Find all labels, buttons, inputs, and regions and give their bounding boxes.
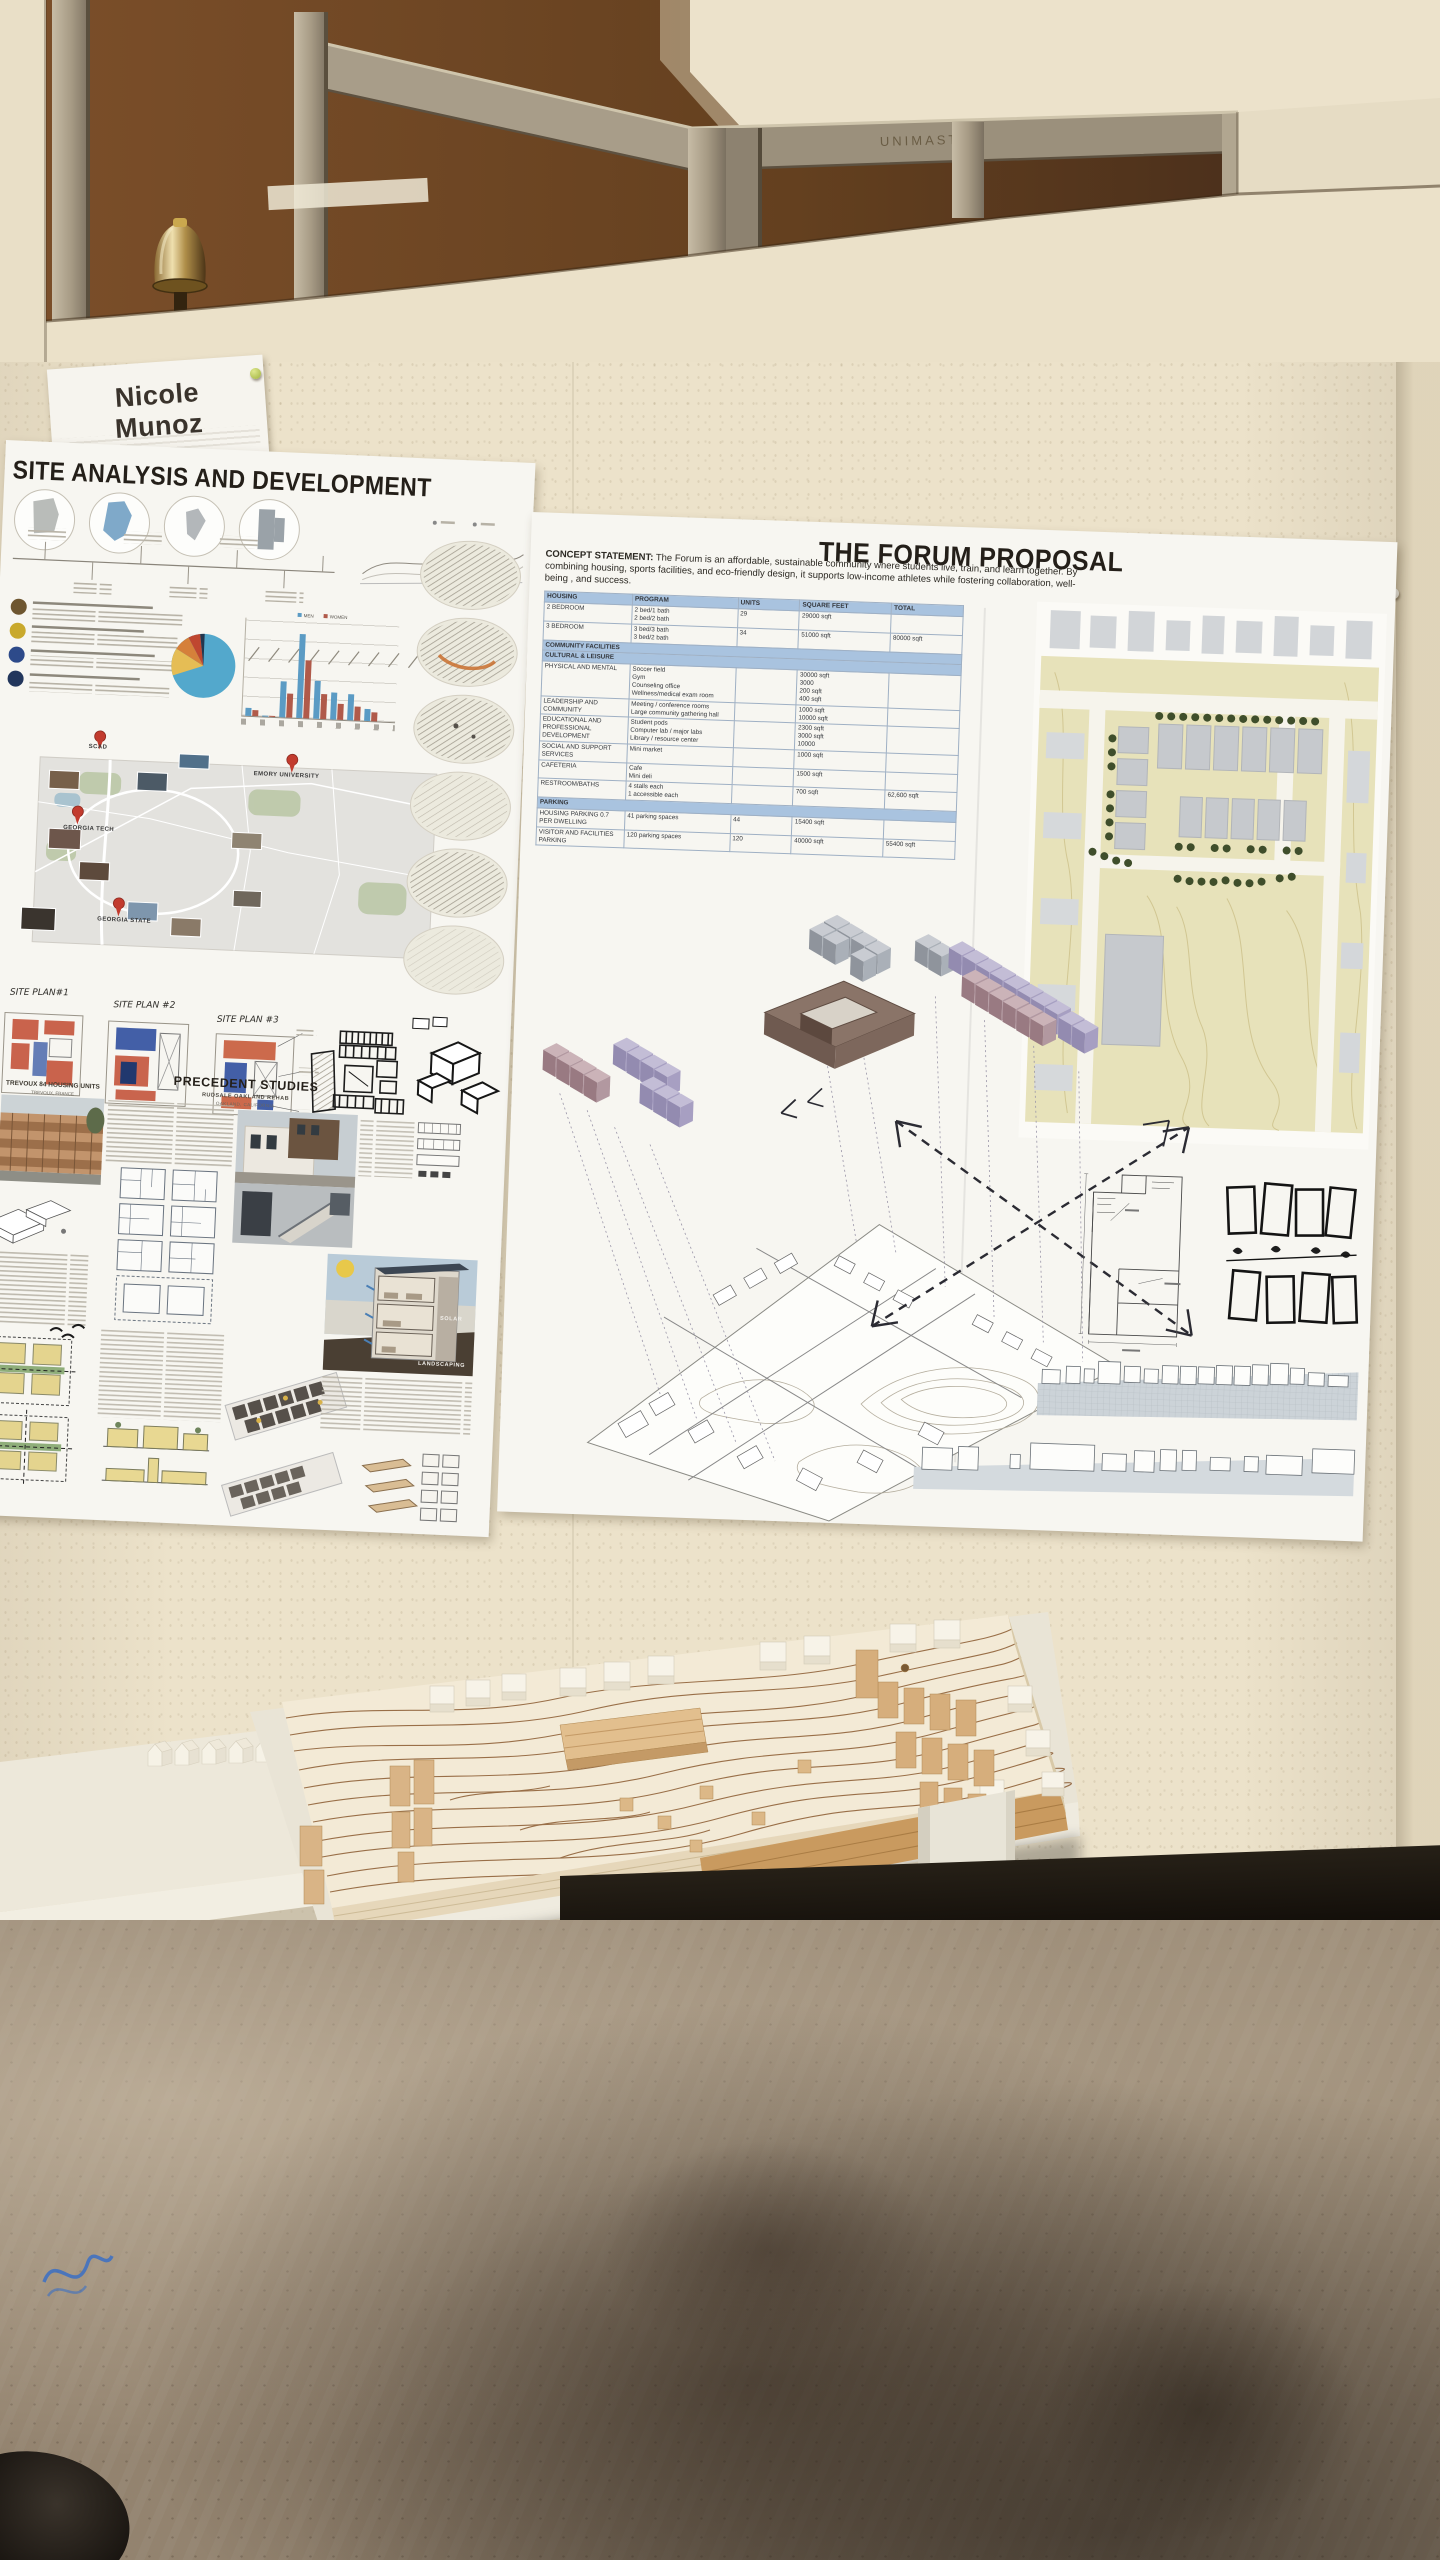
right-poster-graphics bbox=[497, 512, 1397, 1542]
rudsale-photo-1 bbox=[235, 1110, 358, 1188]
poster-site-analysis: SITE ANALYSIS AND DEVELOPMENT bbox=[0, 440, 535, 1537]
site-elevation-strip-2 bbox=[913, 1435, 1355, 1504]
photo-of-architecture-exhibit: UNIMAST Nicole Munoz bbox=[0, 0, 1440, 2560]
bar-group bbox=[330, 693, 344, 720]
framing-stamp-text: UNIMAST bbox=[880, 132, 960, 149]
site-plan-drawing bbox=[1018, 602, 1386, 1150]
demographics-bar-chart: MEN WOMEN bbox=[241, 611, 400, 738]
left-wall-edge bbox=[0, 0, 46, 362]
bar-chart-plot bbox=[241, 618, 399, 724]
yellow-diagram-plan-1 bbox=[0, 1321, 84, 1406]
trevoux-photo bbox=[0, 1094, 105, 1184]
bar bbox=[269, 716, 275, 717]
floor-stain bbox=[600, 2140, 940, 2360]
trevoux-paragraph bbox=[0, 1248, 89, 1327]
section-render bbox=[323, 1254, 478, 1376]
sketch-label-2: SITE PLAN #2 bbox=[113, 1000, 175, 1011]
render-label-solar: SOLAR bbox=[440, 1316, 462, 1323]
floor-stain-2 bbox=[1040, 2280, 1360, 2540]
legend-women: WOMEN bbox=[330, 614, 348, 620]
bar bbox=[286, 694, 293, 718]
rudsale-photo-2 bbox=[232, 1183, 355, 1248]
bar bbox=[337, 703, 344, 720]
bar bbox=[303, 661, 312, 719]
atlanta-map bbox=[20, 728, 438, 959]
marker-unit-sketch bbox=[1223, 1182, 1362, 1326]
poster-forum-proposal: THE FORUM PROPOSAL CONCEPT STATEMENT: Th… bbox=[497, 512, 1397, 1542]
bar-group bbox=[347, 694, 361, 720]
pie-chart bbox=[170, 632, 237, 699]
bar bbox=[262, 715, 268, 716]
unit-bar-diagrams bbox=[360, 1452, 459, 1522]
bar bbox=[245, 708, 251, 716]
legend-men: MEN bbox=[304, 613, 314, 618]
bar-group bbox=[296, 634, 313, 719]
bar bbox=[364, 709, 370, 721]
bar bbox=[354, 706, 361, 721]
bar bbox=[371, 713, 377, 722]
left-poster-graphics bbox=[0, 440, 535, 1537]
dark-roof-plan-strip-2 bbox=[222, 1452, 342, 1516]
u-shaped-building bbox=[763, 978, 916, 1071]
precedent-floor-plans bbox=[115, 1168, 218, 1324]
sketch-label-3: SITE PLAN #3 bbox=[217, 1015, 279, 1026]
pushpin-green bbox=[250, 368, 261, 379]
housing-cluster-left bbox=[541, 1035, 696, 1128]
bar bbox=[252, 710, 258, 716]
precedent-paragraph-3 bbox=[97, 1327, 224, 1422]
blue-floor-scribble bbox=[36, 2238, 122, 2314]
axon-cube-sketch bbox=[409, 1016, 501, 1114]
bar-group bbox=[364, 709, 377, 721]
render-paragraph bbox=[320, 1375, 472, 1437]
precedent-paragraph-1 bbox=[106, 1100, 235, 1167]
window-framing-band: UNIMAST bbox=[0, 0, 1440, 362]
context-circle-diagrams bbox=[13, 488, 300, 560]
bar-group bbox=[262, 715, 275, 717]
bar bbox=[320, 694, 327, 719]
map-label-scad: SCAD bbox=[89, 744, 108, 751]
bar-group bbox=[313, 680, 328, 719]
university-list bbox=[7, 598, 183, 697]
yellow-diagram-plan-2 bbox=[0, 1408, 77, 1486]
bar-group bbox=[245, 708, 258, 716]
small-elevation-diagrams bbox=[416, 1123, 460, 1179]
sketch-label-1: SITE PLAN#1 bbox=[10, 988, 69, 999]
bar bbox=[347, 694, 354, 720]
yellow-elevations bbox=[102, 1421, 210, 1485]
bar bbox=[330, 693, 337, 720]
precedent-paragraph-2 bbox=[358, 1118, 414, 1178]
bar-group bbox=[279, 681, 294, 718]
housing-cluster-top bbox=[808, 914, 892, 983]
trevoux-axon-drawing bbox=[0, 1198, 71, 1246]
